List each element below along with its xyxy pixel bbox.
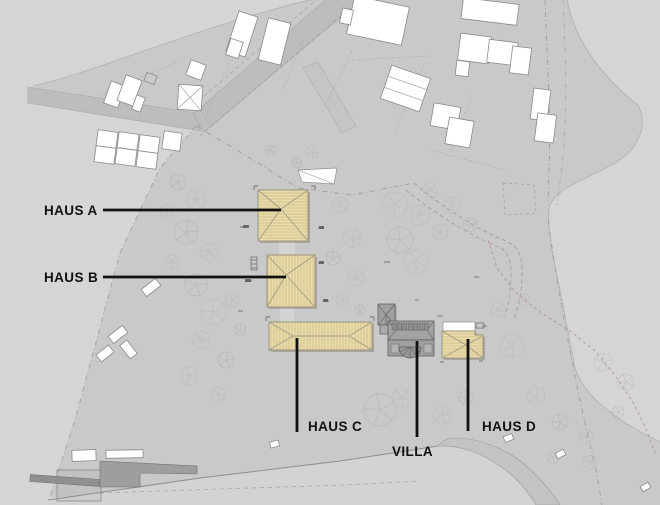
building-haus-b (267, 255, 317, 309)
label-haus-b: HAUS B (44, 270, 98, 285)
site-plan-drawing: HAUS A HAUS B HAUS C VILLA HAUS D (0, 0, 660, 505)
label-haus-c: HAUS C (308, 419, 362, 434)
path-strip-b-c (280, 307, 294, 323)
building-haus-c (269, 322, 374, 352)
label-villa: VILLA (392, 444, 433, 459)
haus-d-white-wing (443, 322, 475, 331)
label-haus-d: HAUS D (482, 419, 536, 434)
building-haus-a (258, 190, 310, 243)
villa-window-right (424, 344, 432, 353)
label-haus-a: HAUS A (44, 203, 98, 218)
villa-dormers (392, 323, 428, 330)
villa-window-left (391, 344, 399, 353)
haus-a-roof (258, 190, 308, 241)
site-plan-stage: HAUS A HAUS B HAUS C VILLA HAUS D (0, 0, 660, 505)
path-strip-a-b (279, 241, 295, 256)
ramp-wedge (298, 168, 337, 184)
